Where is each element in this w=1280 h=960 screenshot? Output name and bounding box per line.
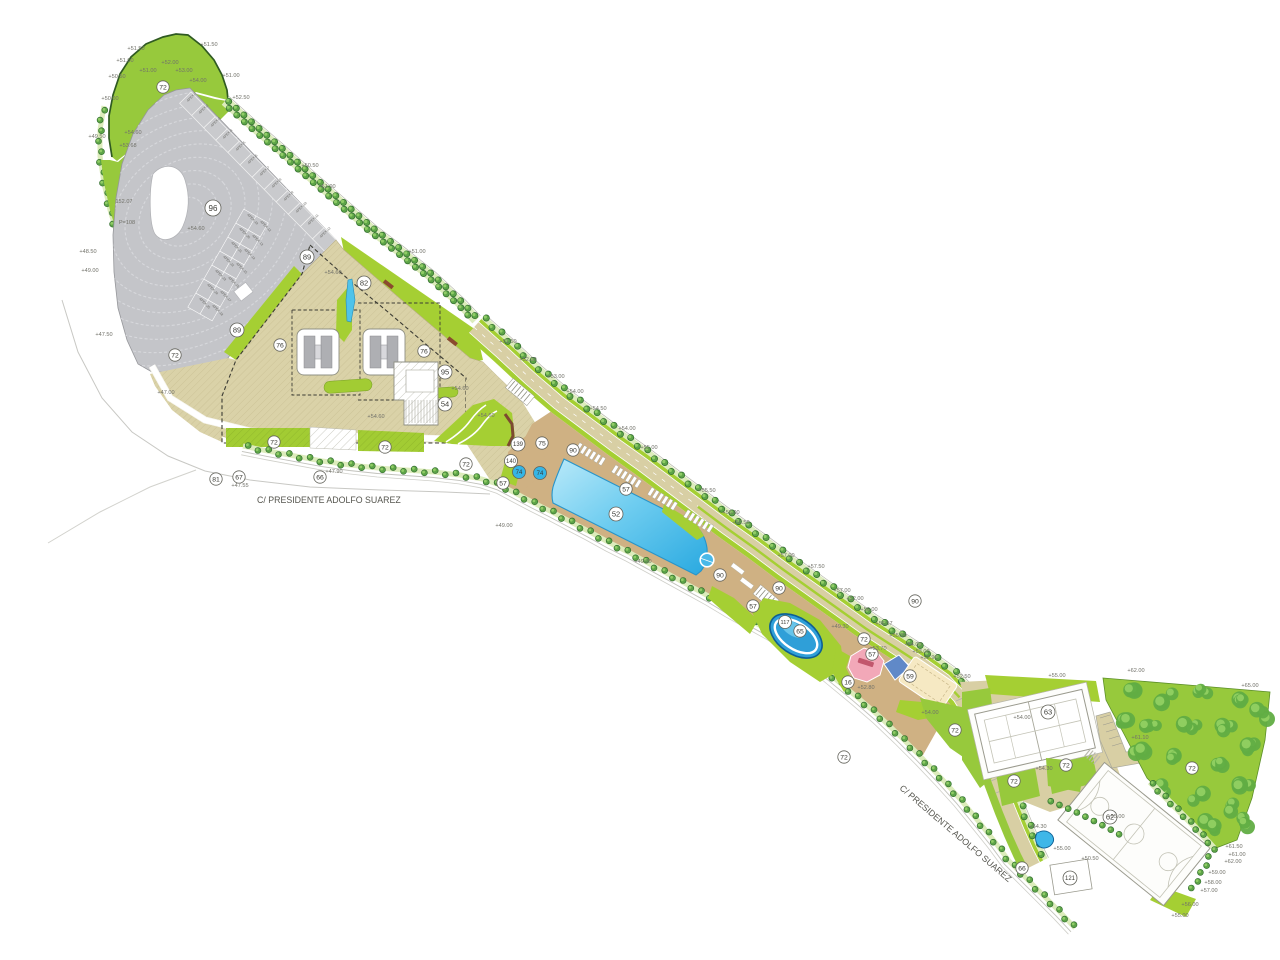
svg-text:+47.55: +47.55 [231,483,248,489]
svg-text:16: 16 [844,679,852,686]
svg-text:72: 72 [860,636,868,643]
svg-text:72: 72 [159,84,167,91]
svg-text:+56.00: +56.00 [860,607,877,613]
svg-text:+52.80: +52.80 [857,685,874,691]
svg-text:72: 72 [951,727,959,734]
svg-text:74: 74 [537,471,544,477]
svg-text:152.07: 152.07 [115,199,132,205]
svg-text:+57.00: +57.00 [1200,888,1217,894]
svg-text:+56.00: +56.00 [1181,902,1198,908]
svg-text:+54.60: +54.60 [477,413,494,419]
svg-text:+56.57: +56.57 [875,621,892,627]
svg-text:+55.00: +55.00 [1048,673,1065,679]
svg-text:+51.00: +51.00 [222,73,239,79]
svg-text:+59.00: +59.00 [1208,870,1225,876]
svg-text:96: 96 [209,204,218,213]
svg-text:+49.00: +49.00 [634,559,651,565]
svg-text:75: 75 [538,440,546,447]
svg-text:+55.00: +55.00 [1107,814,1124,820]
svg-text:72: 72 [1010,778,1018,785]
svg-text:72: 72 [840,754,848,761]
svg-text:72: 72 [1188,765,1196,772]
svg-text:+51.00: +51.00 [139,68,156,74]
svg-text:+54.60: +54.60 [367,414,384,420]
svg-text:+57.50: +57.50 [807,564,824,570]
svg-text:72: 72 [1062,762,1070,769]
svg-text:+51.50: +51.50 [200,42,217,48]
svg-text:+51.00: +51.00 [318,184,335,190]
svg-text:72: 72 [171,352,179,359]
svg-text:P=108: P=108 [119,220,135,226]
svg-text:+56.00: +56.00 [722,510,739,516]
svg-text:52: 52 [612,510,620,519]
svg-text:57: 57 [622,486,630,493]
svg-text:+54.60: +54.60 [324,270,341,276]
svg-text:+48.50: +48.50 [79,249,96,255]
svg-text:95: 95 [441,368,449,377]
svg-text:+55.00: +55.00 [889,633,906,639]
svg-text:+47.50: +47.50 [95,332,112,338]
svg-text:+52.00: +52.00 [519,357,536,363]
svg-text:90: 90 [775,585,783,592]
svg-text:+54.30: +54.30 [1029,824,1046,830]
svg-text:90: 90 [716,572,724,579]
svg-text:+52.50: +52.50 [232,95,249,101]
svg-text:+49.00: +49.00 [495,523,512,529]
svg-text:82: 82 [360,279,368,288]
svg-text:+54.00: +54.00 [921,710,938,716]
svg-text:+55.00: +55.00 [1171,913,1188,919]
svg-text:57: 57 [499,480,507,487]
svg-text:+55.00: +55.00 [1053,846,1070,852]
svg-text:57: 57 [868,651,876,658]
svg-text:+52.00: +52.00 [846,596,863,602]
svg-text:+54.00: +54.00 [189,78,206,84]
svg-text:+52.50: +52.50 [953,674,970,680]
svg-text:+54.60: +54.60 [187,226,204,232]
svg-text:+51.50: +51.50 [499,339,516,345]
svg-text:89: 89 [303,253,311,262]
svg-text:+49.00: +49.00 [81,268,98,274]
svg-text:54: 54 [441,400,449,409]
svg-text:+51.00: +51.00 [116,58,133,64]
svg-text:+50.50: +50.50 [108,74,125,80]
svg-text:C/ PRESIDENTE ADOLFO SUAREZ: C/ PRESIDENTE ADOLFO SUAREZ [257,495,401,505]
svg-text:59: 59 [906,673,914,680]
svg-text:+54.30: +54.30 [1035,766,1052,772]
svg-text:+61.00: +61.00 [1228,852,1245,858]
svg-text:+54.00: +54.00 [1013,715,1030,721]
svg-text:121: 121 [1065,876,1076,882]
svg-text:+53.68: +53.68 [119,143,136,149]
svg-text:+54.60: +54.60 [451,386,468,392]
svg-text:66: 66 [1018,865,1026,872]
svg-text:+54.60: +54.60 [124,130,141,136]
svg-text:+47.00: +47.00 [157,390,174,396]
svg-text:+47.90: +47.90 [325,469,342,475]
svg-text:+55.50: +55.50 [698,488,715,494]
svg-text:+61.50: +61.50 [1225,844,1242,850]
svg-text:+56.50: +56.50 [732,520,749,526]
svg-text:+50.50: +50.50 [1081,856,1098,862]
svg-text:139: 139 [513,442,524,448]
svg-text:+49.50: +49.50 [88,134,105,140]
svg-text:+49.30: +49.30 [831,624,848,630]
svg-text:76: 76 [276,342,284,349]
svg-text:+62.00: +62.00 [1127,668,1144,674]
svg-text:66: 66 [316,474,324,481]
svg-text:+58.00: +58.00 [1204,880,1221,886]
svg-text:+52.90: +52.90 [920,655,937,661]
svg-text:+52.00: +52.00 [161,60,178,66]
svg-text:+51.00: +51.00 [408,249,425,255]
svg-text:+54.00: +54.00 [618,426,635,432]
svg-text:+54.00: +54.00 [566,389,583,395]
svg-text:74: 74 [516,470,523,476]
svg-text:67: 67 [235,474,243,481]
svg-text:72: 72 [270,439,278,446]
svg-text:57: 57 [749,603,757,610]
svg-text:+54.50: +54.50 [589,406,606,412]
svg-text:65: 65 [796,628,804,635]
svg-text:63: 63 [1044,708,1052,717]
svg-text:89: 89 [233,326,241,335]
svg-text:+53.00: +53.00 [175,68,192,74]
svg-text:+57.00: +57.00 [833,588,850,594]
svg-text:+51.50: +51.50 [127,46,144,52]
svg-text:+62.00: +62.00 [1224,859,1241,865]
svg-text:81: 81 [212,476,220,483]
svg-text:117: 117 [781,620,790,626]
svg-text:76: 76 [420,348,428,355]
svg-text:+50.00: +50.00 [101,96,118,102]
svg-text:+57.00: +57.00 [777,553,794,559]
svg-text:+55.00: +55.00 [640,445,657,451]
svg-text:+54.00: +54.00 [904,642,921,648]
svg-text:+50.50: +50.50 [301,163,318,169]
svg-text:+53.00: +53.00 [547,374,564,380]
svg-text:+53.70: +53.70 [869,646,886,652]
svg-text:+61.10: +61.10 [1131,735,1148,741]
svg-text:90: 90 [569,447,577,454]
svg-text:72: 72 [381,444,389,451]
svg-text:72: 72 [462,461,470,468]
svg-text:140: 140 [506,459,517,465]
svg-text:90: 90 [911,598,919,605]
svg-text:+65.00: +65.00 [1241,683,1258,689]
